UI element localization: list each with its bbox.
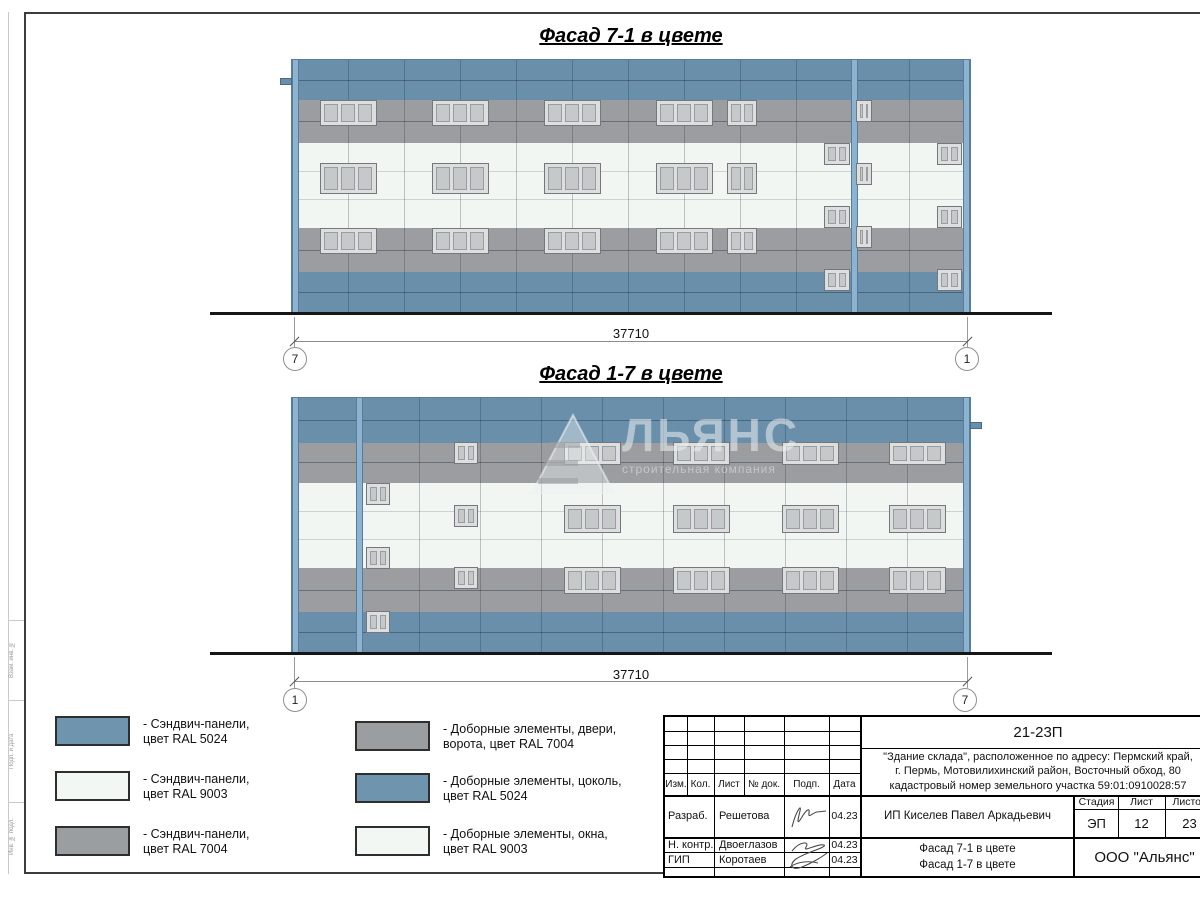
window-pane: [470, 104, 484, 122]
facade-window: [824, 269, 850, 291]
color-swatch-ral9003: [355, 826, 430, 856]
window-pane: [436, 232, 450, 250]
facade-1-7-title: Фасад 1-7 в цвете: [292, 363, 970, 386]
window-pane: [602, 509, 616, 529]
tb-col-izm: Изм.: [665, 773, 687, 795]
window-pane: [803, 571, 817, 590]
facade-window: [656, 228, 713, 254]
window-pane: [677, 571, 691, 590]
window-pane: [828, 210, 836, 224]
window-pane: [694, 509, 708, 529]
tb-sheets-label: Листов: [1165, 795, 1200, 809]
legend-item-windows-9003: - Доборные элементы, окна,цвет RAL 9003: [355, 826, 608, 858]
window-pane: [341, 167, 355, 190]
facade-window: [727, 228, 757, 254]
facade-window: [856, 163, 872, 185]
facade-window: [564, 567, 621, 594]
window-pane: [582, 104, 596, 122]
window-pane: [860, 104, 863, 118]
tb-col-data: Дата: [829, 773, 860, 795]
facade-window: [673, 442, 730, 465]
dimension-extension-line: [967, 657, 968, 688]
facade-window: [544, 228, 601, 254]
window-pane: [470, 232, 484, 250]
window-pane: [324, 167, 338, 190]
color-swatch-ral9003: [55, 771, 130, 801]
window-pane: [828, 273, 836, 287]
panel-joint-vertical: [516, 60, 517, 312]
facade-window: [889, 505, 946, 533]
panel-joint-vertical: [846, 398, 847, 652]
window-pane: [602, 446, 616, 461]
tb-description: "Здание склада", расположенное по адресу…: [862, 748, 1200, 795]
drawing-sheet: Взам. инв. № Подп. и дата Инв. № подл. Ф…: [0, 0, 1200, 900]
margin-label-podp: Подп. и дата: [9, 702, 23, 800]
tb-name-korotaev: Коротаев: [714, 852, 784, 867]
facade-window: [824, 206, 850, 228]
window-pane: [786, 446, 800, 461]
dimension-extension-line: [294, 317, 295, 348]
panel-joint-vertical: [419, 398, 420, 652]
axis-marker-1: 1: [283, 688, 307, 712]
window-pane: [803, 446, 817, 461]
panel-joint-vertical: [909, 60, 910, 312]
facade-window: [564, 505, 621, 533]
window-pane: [694, 104, 708, 122]
window-pane: [731, 104, 741, 122]
axis-marker-7: 7: [953, 688, 977, 712]
facade-window: [856, 226, 872, 248]
window-pane: [370, 487, 377, 501]
window-pane: [436, 104, 450, 122]
tb-role-gip: ГИП: [665, 852, 714, 867]
window-pane: [927, 571, 941, 590]
window-pane: [358, 104, 372, 122]
window-pane: [548, 104, 562, 122]
window-pane: [436, 167, 450, 190]
window-pane: [582, 167, 596, 190]
dimension-extension-line: [967, 317, 968, 348]
tb-sheet-title: Фасад 7-1 в цвете Фасад 1-7 в цвете: [862, 839, 1073, 876]
window-pane: [694, 167, 708, 190]
window-pane: [860, 167, 863, 181]
legend-label: - Сэндвич-панели,цвет RAL 5024: [143, 716, 249, 748]
window-pane: [585, 571, 599, 590]
facade-window: [544, 100, 601, 126]
window-pane: [358, 232, 372, 250]
window-pane: [341, 232, 355, 250]
window-pane: [565, 167, 579, 190]
tb-stage-value: ЭП: [1075, 809, 1118, 837]
facade-window: [889, 442, 946, 465]
window-pane: [803, 509, 817, 529]
facade-band-gray: [292, 443, 970, 483]
tb-client: ИП Киселев Павел Аркадьевич: [862, 795, 1073, 837]
window-pane: [951, 147, 958, 161]
margin-divider: [8, 620, 24, 621]
facade-window: [727, 100, 757, 126]
color-swatch-ral5024: [55, 716, 130, 746]
window-pane: [910, 446, 924, 461]
tb-col-ndok: № док.: [744, 773, 784, 795]
panel-joint-vertical: [541, 398, 542, 652]
window-pane: [585, 446, 599, 461]
panel-joint-horizontal: [292, 462, 970, 463]
facade-1-7-dimension: 37710: [292, 667, 970, 682]
window-pane: [731, 232, 741, 250]
tb-sheet-value: 12: [1118, 809, 1165, 837]
window-pane: [380, 551, 387, 565]
tb-date: 04.23: [829, 852, 860, 867]
legend-label: - Доборные элементы, окна,цвет RAL 9003: [443, 826, 608, 858]
window-pane: [744, 104, 754, 122]
window-pane: [711, 571, 725, 590]
facade-7-1-dimension: 37710: [292, 326, 970, 341]
window-pane: [786, 571, 800, 590]
tb-name-reshetova: Решетова: [714, 795, 784, 837]
facade-window: [782, 442, 839, 465]
window-pane: [951, 210, 958, 224]
facade-7-1-title: Фасад 7-1 в цвете: [292, 25, 970, 48]
window-pane: [565, 104, 579, 122]
panel-joint-horizontal: [292, 590, 970, 591]
ground-line: [210, 312, 1052, 315]
color-swatch-ral5024: [355, 773, 430, 803]
window-pane: [453, 232, 467, 250]
panel-joint-horizontal: [292, 511, 970, 512]
window-pane: [380, 487, 387, 501]
panel-joint-horizontal: [292, 199, 970, 200]
color-swatch-ral7004: [55, 826, 130, 856]
window-pane: [602, 571, 616, 590]
panel-joint-horizontal: [292, 539, 970, 540]
facade-wall: [292, 60, 970, 312]
tb-role-nkontr: Н. контр.: [665, 837, 714, 852]
window-pane: [677, 232, 691, 250]
facade-window: [727, 163, 757, 194]
legend-label: - Доборные элементы, двери,ворота, цвет …: [443, 721, 616, 753]
window-pane: [677, 509, 691, 529]
tb-company: ООО "Альянс": [1075, 839, 1200, 876]
facade-window: [320, 100, 377, 126]
title-block: Изм. Кол. Лист № док. Подп. Дата 21-23П …: [663, 715, 1200, 878]
window-pane: [866, 167, 869, 181]
pilaster: [963, 60, 970, 312]
window-pane: [585, 509, 599, 529]
margin-label-vzam: Взам. инв. №: [9, 622, 23, 698]
facade-window: [454, 505, 478, 527]
window-pane: [568, 446, 582, 461]
facade-band-white: [292, 483, 970, 568]
window-pane: [910, 571, 924, 590]
margin-divider: [8, 802, 24, 803]
window-pane: [468, 446, 475, 460]
panel-joint-vertical: [628, 60, 629, 312]
window-pane: [731, 167, 741, 190]
window-pane: [786, 509, 800, 529]
window-pane: [458, 446, 465, 460]
panel-joint-horizontal: [292, 632, 970, 633]
tb-date: 04.23: [829, 837, 860, 852]
color-swatch-ral7004: [355, 721, 430, 751]
window-pane: [468, 571, 475, 585]
pilaster: [963, 398, 970, 652]
facade-window: [656, 163, 713, 194]
window-pane: [941, 273, 948, 287]
window-pane: [941, 147, 948, 161]
window-pane: [839, 147, 847, 161]
facade-window: [782, 567, 839, 594]
window-pane: [568, 509, 582, 529]
panel-joint-vertical: [796, 60, 797, 312]
tb-doc-number: 21-23П: [862, 717, 1200, 748]
dimension-line: [294, 341, 967, 342]
facade-window: [937, 143, 962, 165]
tb-sheets-value: 23: [1165, 809, 1200, 837]
facade-window: [366, 611, 390, 633]
pilaster: [292, 60, 299, 312]
window-pane: [468, 509, 475, 523]
facade-window: [454, 567, 478, 589]
facade-window: [432, 228, 489, 254]
window-pane: [677, 446, 691, 461]
facade-window: [320, 163, 377, 194]
window-pane: [324, 104, 338, 122]
dimension-extension-line: [294, 657, 295, 688]
window-pane: [839, 273, 847, 287]
window-pane: [582, 232, 596, 250]
facade-window: [824, 143, 850, 165]
facade-window: [937, 206, 962, 228]
facade-window: [889, 567, 946, 594]
window-pane: [893, 571, 907, 590]
window-pane: [548, 167, 562, 190]
pilaster: [356, 398, 363, 652]
legend-item-sandwich-5024: - Сэндвич-панели,цвет RAL 5024: [55, 716, 249, 748]
tb-stage-label: Стадия: [1075, 795, 1118, 809]
tb-line: [665, 745, 860, 746]
downspout-tab: [280, 78, 292, 85]
panel-joint-vertical: [404, 60, 405, 312]
legend-item-doors-7004: - Доборные элементы, двери,ворота, цвет …: [355, 721, 616, 753]
facade-window: [432, 163, 489, 194]
window-pane: [941, 210, 948, 224]
window-pane: [866, 230, 869, 244]
facade-window: [782, 505, 839, 533]
window-pane: [453, 104, 467, 122]
pilaster: [292, 398, 299, 652]
ground-line: [210, 652, 1052, 655]
tb-date: 04.23: [829, 795, 860, 837]
window-pane: [568, 571, 582, 590]
panel-joint-vertical: [480, 398, 481, 652]
signature-korotaev: [784, 837, 831, 875]
legend-label: - Сэндвич-панели,цвет RAL 9003: [143, 771, 249, 803]
window-pane: [694, 446, 708, 461]
window-pane: [458, 571, 465, 585]
window-pane: [370, 615, 377, 629]
window-pane: [820, 571, 834, 590]
window-pane: [828, 147, 836, 161]
dimension-line: [294, 681, 967, 682]
window-pane: [660, 167, 674, 190]
frame-top: [24, 12, 1200, 14]
window-pane: [677, 167, 691, 190]
window-pane: [744, 232, 754, 250]
axis-marker-1: 1: [955, 347, 979, 371]
window-pane: [453, 167, 467, 190]
tb-col-podp: Подп.: [784, 773, 829, 795]
facade-window: [366, 547, 390, 569]
facade-window: [432, 100, 489, 126]
pilaster: [851, 60, 858, 312]
window-pane: [711, 446, 725, 461]
window-pane: [927, 446, 941, 461]
panel-joint-horizontal: [292, 420, 970, 421]
window-pane: [370, 551, 377, 565]
panel-joint-horizontal: [292, 292, 970, 293]
window-pane: [820, 446, 834, 461]
panel-joint-horizontal: [292, 250, 970, 251]
frame-left: [24, 12, 26, 874]
margin-label-inv: Инв. № подл.: [9, 804, 23, 870]
legend-item-sandwich-9003: - Сэндвич-панели,цвет RAL 9003: [55, 771, 249, 803]
downspout-tab: [970, 422, 982, 429]
window-pane: [711, 509, 725, 529]
facade-window: [366, 483, 390, 505]
window-pane: [951, 273, 958, 287]
tb-role-razrab: Разраб.: [665, 795, 714, 837]
panel-joint-vertical: [663, 398, 664, 652]
window-pane: [565, 232, 579, 250]
window-pane: [358, 167, 372, 190]
window-pane: [548, 232, 562, 250]
window-pane: [470, 167, 484, 190]
legend-item-plinth-5024: - Доборные элементы, цоколь,цвет RAL 502…: [355, 773, 622, 805]
signature-reshetova: [786, 799, 830, 835]
facade-wall: [292, 398, 970, 652]
facade-window: [564, 442, 621, 465]
legend-label: - Доборные элементы, цоколь,цвет RAL 502…: [443, 773, 622, 805]
facade-window: [673, 567, 730, 594]
window-pane: [839, 210, 847, 224]
window-pane: [324, 232, 338, 250]
panel-joint-horizontal: [292, 80, 970, 81]
facade-window: [454, 442, 478, 464]
window-pane: [660, 104, 674, 122]
window-pane: [660, 232, 674, 250]
tb-line: [665, 759, 860, 760]
window-pane: [694, 232, 708, 250]
facade-band-white: [292, 143, 970, 228]
tb-name-dvoeglazov: Двоеглазов: [714, 837, 784, 852]
window-pane: [677, 104, 691, 122]
facade-window: [937, 269, 962, 291]
window-pane: [820, 509, 834, 529]
facade-window: [673, 505, 730, 533]
window-pane: [893, 446, 907, 461]
window-pane: [341, 104, 355, 122]
window-pane: [694, 571, 708, 590]
axis-marker-7: 7: [283, 347, 307, 371]
window-pane: [927, 509, 941, 529]
window-pane: [910, 509, 924, 529]
window-pane: [458, 509, 465, 523]
legend-label: - Сэндвич-панели,цвет RAL 7004: [143, 826, 249, 858]
window-pane: [744, 167, 754, 190]
facade-window: [544, 163, 601, 194]
tb-col-kol: Кол.: [687, 773, 714, 795]
facade-window: [656, 100, 713, 126]
facade-window: [320, 228, 377, 254]
margin-divider: [8, 700, 24, 701]
legend-item-sandwich-7004: - Сэндвич-панели,цвет RAL 7004: [55, 826, 249, 858]
window-pane: [866, 104, 869, 118]
facade-window: [856, 100, 872, 122]
tb-sheet-label: Лист: [1118, 795, 1165, 809]
tb-line: [665, 731, 860, 732]
window-pane: [860, 230, 863, 244]
window-pane: [893, 509, 907, 529]
window-pane: [380, 615, 387, 629]
tb-col-list: Лист: [714, 773, 744, 795]
